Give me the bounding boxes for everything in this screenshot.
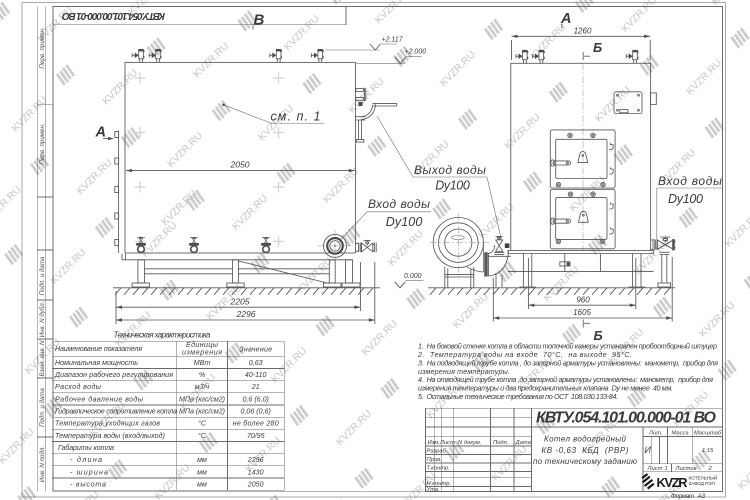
svg-text:21: 21 (251, 383, 260, 391)
svg-text:КВТУ.054.101.00.000-01 ВО: КВТУ.054.101.00.000-01 ВО (536, 410, 717, 427)
svg-text:°С: °С (198, 432, 207, 440)
svg-text:1605: 1605 (573, 308, 591, 317)
svg-text:Б: Б (593, 40, 602, 55)
svg-text:70/95: 70/95 (247, 432, 265, 440)
svg-text:Разраб.: Разраб. (427, 449, 448, 455)
svg-text:%: % (199, 371, 205, 379)
svg-text:МПа (кгс/см2): МПа (кгс/см2) (179, 408, 225, 416)
svg-text:Подп.: Подп. (493, 440, 508, 446)
svg-text:- длина: - длина (70, 456, 102, 464)
svg-text:1260: 1260 (574, 27, 592, 36)
svg-text:Лист: Лист (647, 466, 663, 472)
svg-text:Техническая характеристика: Техническая характеристика (114, 331, 212, 340)
svg-text:м3/ч: м3/ч (195, 383, 210, 391)
svg-text:Листов: Листов (675, 466, 697, 472)
svg-text:Перв. примен.: Перв. примен. (39, 27, 46, 68)
svg-text:960: 960 (576, 295, 590, 304)
svg-text:измерения: измерения (182, 348, 222, 356)
svg-text:Пров.: Пров. (427, 457, 442, 463)
svg-text:КВ -0,63 КБД (РВР): КВ -0,63 КБД (РВР) (542, 446, 629, 455)
svg-text:КОТЕЛЬНЫЙ: КОТЕЛЬНЫЙ (689, 474, 718, 481)
svg-text:Т.контр.: Т.контр. (427, 466, 450, 472)
svg-text:1:15: 1:15 (702, 448, 714, 454)
svg-text:не более 280: не более 280 (233, 420, 279, 428)
svg-text:Рабочее давление воды: Рабочее давление воды (55, 395, 144, 403)
svg-text:Изм.Лист: Изм.Лист (428, 440, 455, 446)
svg-text:мм: мм (197, 468, 207, 476)
svg-text:2050: 2050 (247, 481, 264, 489)
svg-text:Dy100: Dy100 (668, 192, 703, 206)
svg-text:ЗАВОД РЭП: ЗАВОД РЭП (689, 481, 715, 486)
svg-text:Габариты котла: Габариты котла (58, 444, 114, 452)
svg-text:5. Остальные технические треб: 5. Остальные технические требования по О… (418, 392, 618, 401)
svg-text:Масштаб: Масштаб (694, 431, 722, 437)
svg-text:1430: 1430 (248, 468, 264, 476)
svg-text:Подп. и дата: Подп. и дата (39, 388, 46, 427)
svg-text:Температура уходящих газов: Температура уходящих газов (55, 420, 160, 428)
svg-text:Расход воды: Расход воды (55, 383, 102, 391)
svg-text:МПа (кгс/см2): МПа (кгс/см2) (179, 395, 225, 403)
svg-text:Взам. инв. N: Взам. инв. N (39, 340, 46, 377)
svg-text:Подп. и дата: Подп. и дата (39, 256, 46, 295)
svg-text:Масса: Масса (672, 431, 690, 437)
svg-text:+2.117: +2.117 (382, 37, 404, 44)
svg-text:Вход воды: Вход воды (368, 197, 430, 211)
svg-text:2050: 2050 (229, 159, 249, 169)
svg-text:Вход воды: Вход воды (658, 174, 722, 188)
svg-text:Утв.: Утв. (426, 487, 440, 493)
svg-text:Перв. примен.: Перв. примен. (39, 123, 46, 164)
svg-text:0,6 (6,0): 0,6 (6,0) (242, 395, 268, 403)
svg-text:Инв. N подл.: Инв. N подл. (39, 446, 46, 482)
svg-text:0,63: 0,63 (249, 359, 263, 367)
svg-text:мм: мм (197, 456, 207, 464)
svg-text:по техническому заданию: по техническому заданию (533, 457, 637, 466)
svg-text:+2.000: +2.000 (405, 49, 427, 56)
svg-text:Инв. N дубл.: Инв. N дубл. (39, 302, 46, 338)
svg-text:Дата: Дата (515, 440, 532, 446)
svg-text:МВт: МВт (194, 359, 211, 367)
svg-text:Наименование показателя: Наименование показателя (55, 345, 142, 353)
svg-text:KVZR: KVZR (657, 475, 688, 490)
svg-text:Гидравлическое сопротивление к: Гидравлическое сопротивление котла (55, 408, 177, 416)
svg-text:мм: мм (197, 481, 207, 489)
svg-text:Dy100: Dy100 (435, 179, 470, 193)
svg-text:Значение: Значение (239, 345, 272, 353)
svg-text:N докум.: N докум. (458, 440, 481, 446)
svg-text:Лит.: Лит. (648, 431, 663, 437)
svg-text:2296: 2296 (247, 456, 264, 464)
svg-text:КВТУ.054.101.00.000-01 ВО: КВТУ.054.101.00.000-01 ВО (62, 10, 165, 21)
svg-text:И: И (645, 445, 652, 455)
svg-text:°С: °С (198, 420, 207, 428)
svg-text:2296: 2296 (235, 309, 255, 319)
svg-text:Формат А3: Формат А3 (671, 493, 705, 500)
svg-text:Номинальная мощность: Номинальная мощность (55, 359, 138, 367)
svg-text:Котел водогрейный: Котел водогрейный (544, 435, 627, 444)
svg-text:40-110: 40-110 (245, 371, 267, 379)
svg-text:Dy100: Dy100 (386, 215, 423, 229)
svg-text:B: B (254, 11, 265, 28)
svg-text:Температура воды (вход/выход): Температура воды (вход/выход) (55, 432, 165, 440)
svg-text:2205: 2205 (229, 296, 249, 306)
svg-text:0,06 (0,6): 0,06 (0,6) (241, 408, 271, 416)
svg-text:- высота: - высота (70, 481, 106, 489)
svg-text:0.000: 0.000 (404, 273, 422, 280)
svg-text:Выход воды: Выход воды (414, 163, 486, 177)
svg-text:Диапазон рабочего регулировани: Диапазон рабочего регулирования (54, 371, 173, 379)
svg-text:1: 1 (665, 466, 668, 472)
svg-text:- ширина: - ширина (70, 468, 108, 476)
